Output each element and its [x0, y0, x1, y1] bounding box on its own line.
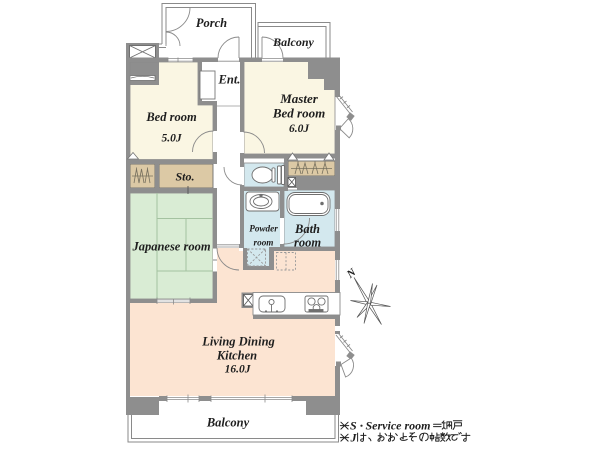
svg-text:Porch: Porch [196, 16, 227, 30]
svg-text:Balcony: Balcony [206, 416, 250, 430]
svg-text:Living Dining: Living Dining [201, 335, 275, 349]
svg-text:room: room [254, 238, 274, 248]
svg-text:room: room [294, 236, 321, 250]
svg-text:Sto.: Sto. [175, 170, 194, 184]
svg-text:Japanese room: Japanese room [131, 240, 210, 254]
svg-text:Balcony: Balcony [272, 35, 314, 49]
svg-text:Ent.: Ent. [218, 73, 241, 87]
svg-text:Bed room: Bed room [145, 110, 197, 124]
svg-text:6.0J: 6.0J [289, 123, 310, 135]
svg-text:16.0J: 16.0J [225, 364, 252, 376]
svg-text:Kitchen: Kitchen [216, 349, 257, 363]
svg-text:5.0J: 5.0J [161, 133, 182, 145]
svg-text:Powder: Powder [249, 224, 278, 234]
svg-text:Service room: Service room [366, 419, 431, 433]
svg-text:Bed room: Bed room [272, 106, 325, 121]
svg-text:Master: Master [279, 91, 319, 106]
svg-text:Bath: Bath [294, 222, 320, 236]
svg-text:J: J [350, 431, 358, 445]
